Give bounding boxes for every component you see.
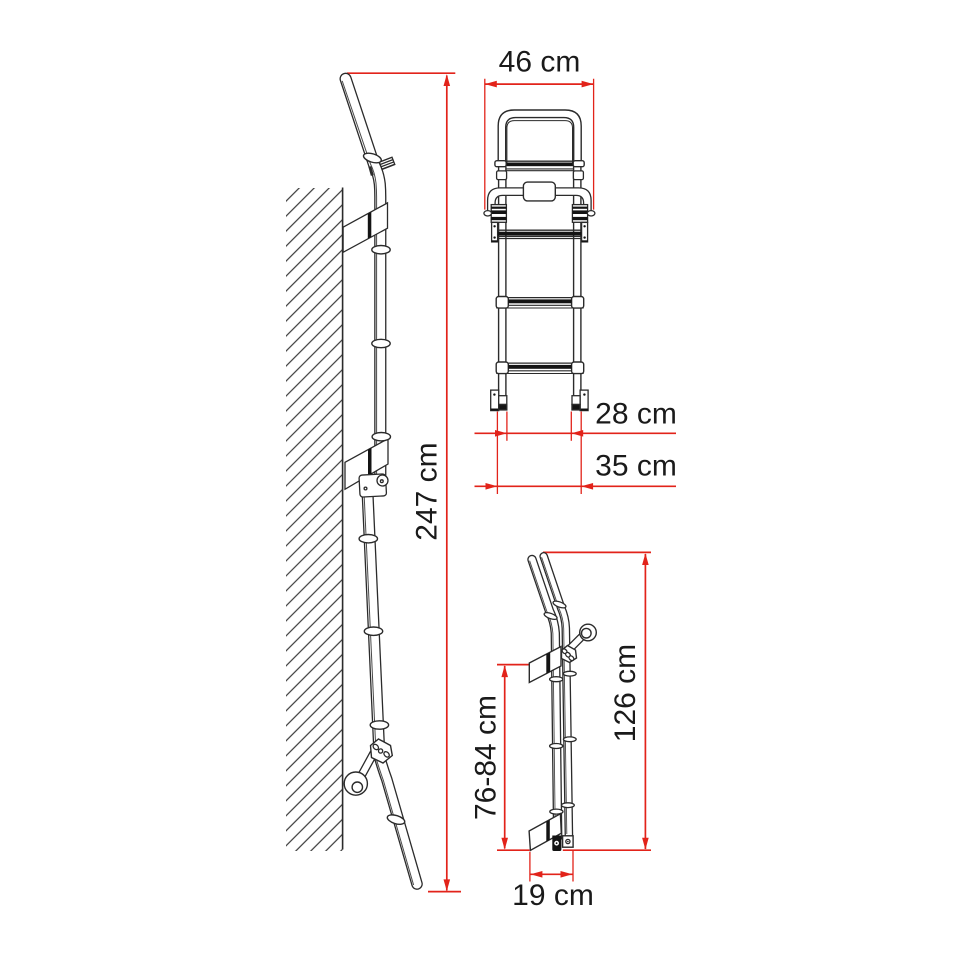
svg-text:247 cm: 247 cm (411, 442, 444, 540)
svg-text:35 cm: 35 cm (595, 450, 677, 483)
svg-text:126 cm: 126 cm (609, 644, 642, 742)
svg-text:19 cm: 19 cm (512, 879, 594, 912)
svg-text:76-84 cm: 76-84 cm (470, 695, 503, 820)
svg-text:28 cm: 28 cm (595, 398, 677, 431)
svg-text:46 cm: 46 cm (499, 46, 581, 79)
